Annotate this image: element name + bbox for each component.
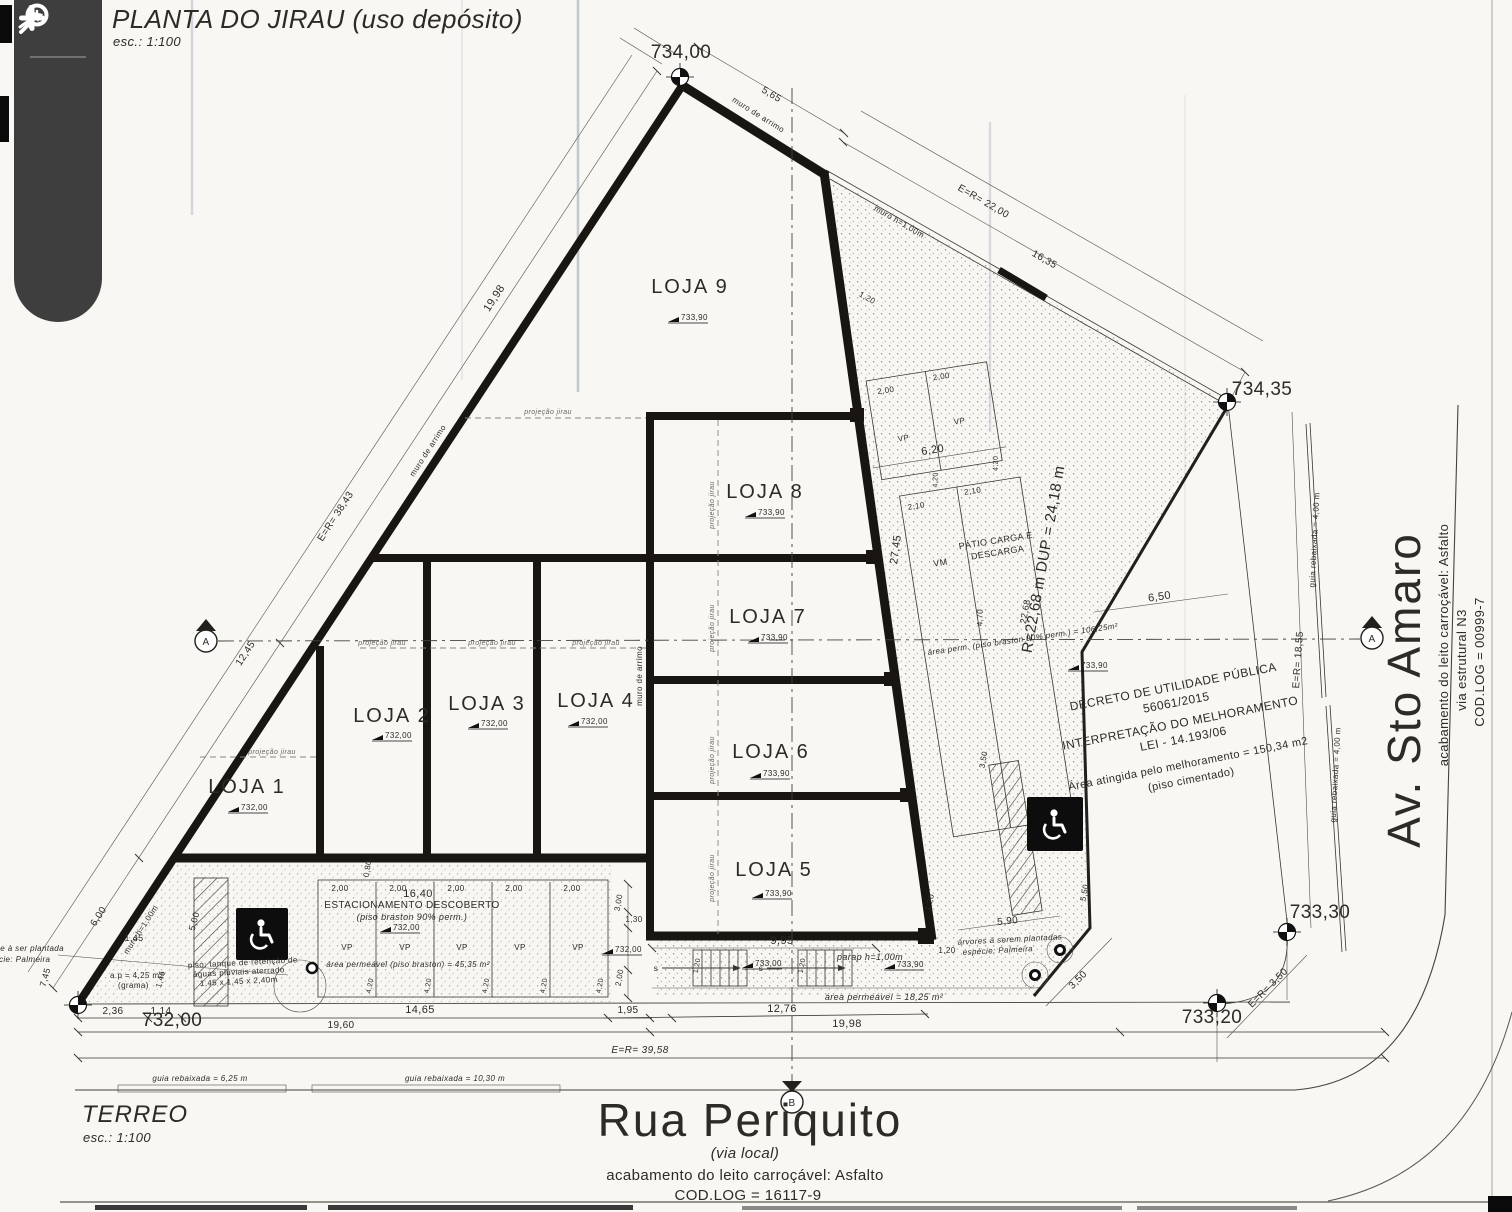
vp-stall: VP bbox=[341, 943, 352, 952]
dim: 4,70 bbox=[975, 609, 984, 626]
loja-3-elev: 732,00 bbox=[481, 719, 508, 728]
parapet-label: parap h=1,00m bbox=[836, 952, 903, 962]
projecao-label: projeção jirau bbox=[357, 640, 406, 647]
dim: 6,00 bbox=[89, 905, 110, 929]
tree-left-note-1: árvore à ser plantada bbox=[0, 944, 64, 953]
stair-elev: 733,00 bbox=[755, 959, 782, 968]
zoom-in-button[interactable] bbox=[30, 231, 86, 287]
loja-1-label: LOJA 1 bbox=[208, 776, 286, 798]
dim: 2,36 bbox=[102, 1006, 123, 1017]
vp-stall: VP bbox=[572, 943, 583, 952]
projecao-label: projeção jirau bbox=[467, 640, 516, 647]
loja-4-elev: 732,00 bbox=[581, 717, 608, 726]
scan-mark bbox=[0, 96, 9, 142]
scanned-plan-page: A A B PLANTA DO JIRAU (uso depósito) esc… bbox=[0, 0, 1512, 1212]
floor-title: TERREO bbox=[82, 1101, 188, 1128]
dim: 2,00 bbox=[614, 968, 626, 987]
projecao-label: projeção jirau bbox=[709, 854, 716, 903]
zoom-out-button[interactable] bbox=[30, 85, 86, 141]
dim: 2,00 bbox=[331, 884, 348, 893]
decree-note: DECRETO DE UTILIDADE PÚBLICA 56061/2015 … bbox=[1052, 656, 1312, 810]
scan-mark bbox=[0, 5, 12, 43]
level-734-35: 734,35 bbox=[1232, 379, 1293, 400]
vp-stall: VP bbox=[399, 943, 410, 952]
muro-arrimo-col: muro de arrimo bbox=[635, 646, 644, 706]
dim: 2,00 bbox=[447, 884, 464, 893]
zoom-in-icon bbox=[14, 0, 50, 36]
parking-elev-2: 732,00 bbox=[615, 945, 642, 954]
dim: E=R= 38,43 bbox=[316, 490, 356, 544]
parking-sub: (piso braston 90% perm.) bbox=[357, 912, 468, 922]
patio-elev: 733,90 bbox=[1081, 661, 1108, 670]
level-734-00: 734,00 bbox=[651, 42, 712, 63]
loja-6-elev: 733,90 bbox=[763, 769, 790, 778]
street-right-name: Av. Sto Amaro bbox=[1378, 532, 1430, 848]
section-a-left: A bbox=[202, 637, 209, 648]
dim: 2,00 bbox=[505, 884, 522, 893]
section-a-right: A bbox=[1368, 634, 1375, 645]
projecao-label: projeção jirau bbox=[709, 604, 716, 653]
loja-1-elev: 732,00 bbox=[241, 803, 268, 812]
projecao-label: projeção jirau bbox=[709, 481, 716, 530]
dim: 14,65 bbox=[405, 1004, 435, 1016]
street-right-surface: acabamento do leito carroçável: Asfalto bbox=[1436, 524, 1451, 767]
zoom-controls bbox=[14, 58, 102, 322]
zoom-reset-button[interactable] bbox=[30, 158, 86, 214]
dim: E=R= 3,50 bbox=[1246, 966, 1290, 1010]
parking-elev: 732,00 bbox=[393, 923, 420, 932]
loja-2-elev: 732,00 bbox=[385, 731, 412, 740]
loja-3-label: LOJA 3 bbox=[448, 693, 526, 715]
vp-stall: VP bbox=[953, 416, 966, 427]
street-right-codlog: COD.LOG = 00999-7 bbox=[1472, 597, 1487, 726]
street-bottom-name: Rua Periquito bbox=[598, 1094, 903, 1146]
stair-up-label: s bbox=[654, 964, 658, 973]
loja-8-label: LOJA 8 bbox=[726, 481, 804, 503]
tree-left-note-2: espécie: Palmeira bbox=[0, 955, 51, 964]
floor-scale: esc.: 1:100 bbox=[83, 1130, 151, 1145]
dim: 5,90 bbox=[997, 915, 1019, 928]
dim: 19,98 bbox=[481, 283, 507, 314]
dim: 19,60 bbox=[327, 1020, 354, 1031]
dim: 4,20 bbox=[932, 472, 939, 487]
dim: 1,30 bbox=[625, 915, 642, 924]
plan-drawing: A A B PLANTA DO JIRAU (uso depósito) esc… bbox=[0, 0, 1512, 1212]
scan-creases bbox=[192, 0, 1492, 1212]
dim: E=R= 22,00 bbox=[956, 183, 1011, 221]
level-733-30: 733,30 bbox=[1290, 902, 1351, 923]
guia-6-25: guia rebaixada = 6,25 m bbox=[152, 1074, 247, 1083]
dim: 16,35 bbox=[1030, 248, 1059, 271]
dim: 19,98 bbox=[832, 1018, 862, 1030]
dim: 1,95 bbox=[617, 1005, 638, 1016]
projecao-label: projeção jirau bbox=[523, 409, 572, 416]
level-733-20: 733,20 bbox=[1182, 1007, 1243, 1028]
loja-4-label: LOJA 4 bbox=[557, 690, 635, 712]
parap-elev: 733,90 bbox=[897, 960, 924, 969]
dim: 16,40 bbox=[403, 888, 433, 900]
dim: 3,00 bbox=[613, 893, 625, 912]
scan-mark bbox=[95, 1205, 307, 1210]
guia-10-30: guia rebaixada = 10,30 m bbox=[405, 1074, 505, 1083]
guia-4-upper: guia rebaixada = 4,00 m bbox=[1308, 492, 1322, 588]
street-bottom-codlog: COD.LOG = 16117-9 bbox=[674, 1187, 821, 1204]
perm-right: área permeável = 18,25 m² bbox=[825, 992, 944, 1002]
loja-7-label: LOJA 7 bbox=[729, 606, 807, 628]
loja-5-elev: 733,90 bbox=[765, 889, 792, 898]
loja-8-elev: 733,90 bbox=[758, 508, 785, 517]
dim: 5,65 bbox=[759, 85, 783, 105]
dim: 3,50 bbox=[1067, 969, 1090, 992]
grass-note-2: (grama) bbox=[118, 981, 149, 990]
parking-title: ESTACIONAMENTO DESCOBERTO bbox=[324, 900, 499, 911]
dim: 2,00 bbox=[563, 884, 580, 893]
loja-7-elev: 733,90 bbox=[761, 633, 788, 642]
projecao-label: projeção jirau bbox=[709, 736, 716, 785]
guia-4-lower: guia rebaixada = 4,00 m bbox=[1329, 727, 1343, 823]
dim: 4,20 bbox=[992, 456, 999, 471]
loja-5-label: LOJA 5 bbox=[735, 859, 813, 881]
loja-2-label: LOJA 2 bbox=[353, 705, 431, 727]
vp-stall: VP bbox=[897, 433, 910, 444]
loja-9-elev: 733,90 bbox=[681, 313, 708, 322]
street-right-type: via estrutural N3 bbox=[1454, 609, 1469, 710]
parking-perm: área permeável (piso braston) = 45,35 m² bbox=[326, 960, 489, 969]
projecao-label: projeção jirau bbox=[571, 640, 620, 647]
dim: 1,20 bbox=[938, 946, 955, 955]
vp-stall: VP bbox=[456, 943, 467, 952]
dim: 9,95 bbox=[770, 935, 793, 947]
vp-stall: VP bbox=[514, 943, 525, 952]
scan-mark bbox=[328, 1205, 633, 1210]
sheet-title: PLANTA DO JIRAU (uso depósito) bbox=[112, 4, 523, 34]
paved-areas bbox=[84, 176, 1228, 1002]
viewer-toolbar bbox=[14, 0, 102, 322]
dim: 1,14 bbox=[150, 1006, 171, 1017]
sheet-scale: esc.: 1:100 bbox=[113, 34, 181, 49]
loja-9-label: LOJA 9 bbox=[651, 276, 729, 298]
dim: 12,76 bbox=[767, 1003, 797, 1015]
scan-mark bbox=[1137, 1206, 1297, 1210]
dim: E=R= 39,58 bbox=[611, 1045, 668, 1056]
scan-mark bbox=[1488, 1196, 1512, 1212]
projecao-label: projeção jirau bbox=[247, 749, 296, 756]
scan-mark bbox=[742, 1206, 1122, 1210]
loja-6-label: LOJA 6 bbox=[732, 741, 810, 763]
street-bottom-surface: acabamento do leito carroçável: Asfalto bbox=[606, 1167, 883, 1184]
street-bottom-type: (via local) bbox=[711, 1145, 780, 1162]
